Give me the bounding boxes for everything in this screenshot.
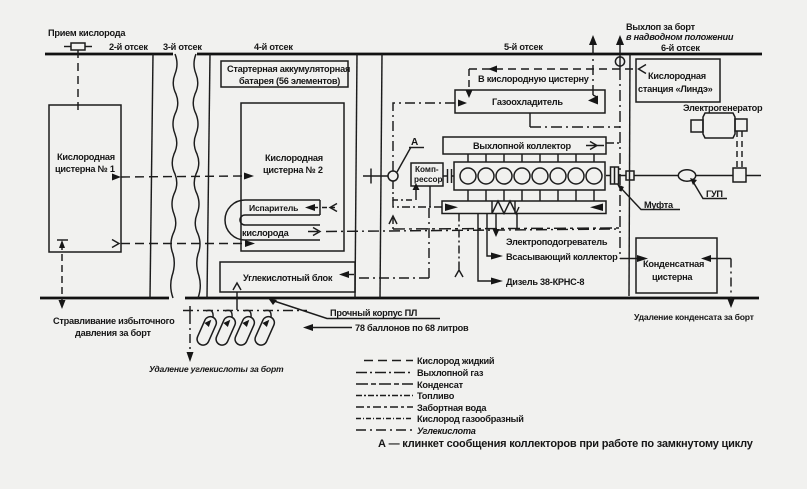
svg-text:Муфта: Муфта	[644, 200, 674, 210]
svg-text:Кислородная: Кислородная	[648, 71, 706, 81]
svg-text:Прием кислорода: Прием кислорода	[48, 28, 126, 38]
svg-text:цистерна: цистерна	[652, 272, 693, 282]
svg-text:Испаритель: Испаритель	[249, 203, 298, 213]
svg-text:станция «Линдэ»: станция «Линдэ»	[638, 84, 713, 94]
svg-text:Забортная вода: Забортная вода	[417, 403, 487, 413]
svg-text:Углекислота: Углекислота	[417, 426, 476, 436]
svg-text:2-й отсек: 2-й отсек	[109, 42, 148, 52]
svg-text:78 баллонов по 68 литров: 78 баллонов по 68 литров	[355, 323, 469, 333]
svg-text:Комп-: Комп-	[415, 165, 439, 174]
svg-text:4-й отсек: 4-й отсек	[254, 42, 293, 52]
svg-text:батарея (56 элементов): батарея (56 элементов)	[239, 76, 340, 86]
svg-text:6-й отсек: 6-й отсек	[661, 43, 700, 53]
svg-text:Конденсат: Конденсат	[417, 380, 464, 390]
svg-text:Выхлоп за борт: Выхлоп за борт	[626, 22, 696, 32]
svg-text:Стартерная аккумуляторная: Стартерная аккумуляторная	[227, 64, 350, 74]
svg-text:Выхлопной газ: Выхлопной газ	[417, 368, 484, 378]
svg-text:Кислород газообразный: Кислород газообразный	[417, 414, 524, 424]
svg-text:Прочный корпус ПЛ: Прочный корпус ПЛ	[330, 308, 417, 318]
svg-text:Всасывающий коллектор: Всасывающий коллектор	[506, 252, 618, 262]
svg-text:кислорода: кислорода	[242, 228, 290, 238]
svg-text:В кислородную цистерну: В кислородную цистерну	[478, 74, 590, 84]
svg-text:цистерна № 1: цистерна № 1	[55, 164, 115, 174]
svg-text:Электроподогреватель: Электроподогреватель	[506, 237, 608, 247]
svg-text:Выхлопной коллектор: Выхлопной коллектор	[473, 141, 571, 151]
svg-text:Электрогенератор: Электрогенератор	[683, 103, 763, 113]
svg-text:Конденсатная: Конденсатная	[643, 259, 704, 269]
svg-text:цистерна № 2: цистерна № 2	[263, 165, 323, 175]
svg-text:Дизель 38-КРНС-8: Дизель 38-КРНС-8	[506, 277, 584, 287]
svg-text:в надводном положении: в надводном положении	[626, 32, 734, 42]
svg-text:Газоохладитель: Газоохладитель	[492, 97, 563, 107]
svg-text:3-й отсек: 3-й отсек	[163, 42, 202, 52]
svg-text:Кислород жидкий: Кислород жидкий	[417, 356, 495, 366]
svg-text:Кислородная: Кислородная	[265, 153, 323, 163]
svg-text:Удаление углекислоты за борт: Удаление углекислоты за борт	[149, 364, 284, 374]
svg-text:А — клинкет сообщения коллекто: А — клинкет сообщения коллекторов при ра…	[378, 438, 754, 450]
svg-text:ГУП: ГУП	[706, 189, 723, 199]
svg-text:давления за борт: давления за борт	[75, 328, 152, 338]
svg-text:Углекислотный блок: Углекислотный блок	[243, 273, 333, 283]
svg-text:Стравливание избыточного: Стравливание избыточного	[53, 316, 175, 326]
svg-text:Кислородная: Кислородная	[57, 152, 115, 162]
svg-text:рессор: рессор	[414, 175, 443, 184]
svg-text:5-й отсек: 5-й отсек	[504, 42, 543, 52]
svg-text:А: А	[411, 137, 418, 148]
svg-text:Топливо: Топливо	[417, 391, 455, 401]
svg-text:Удаление конденсата за борт: Удаление конденсата за борт	[634, 312, 754, 322]
